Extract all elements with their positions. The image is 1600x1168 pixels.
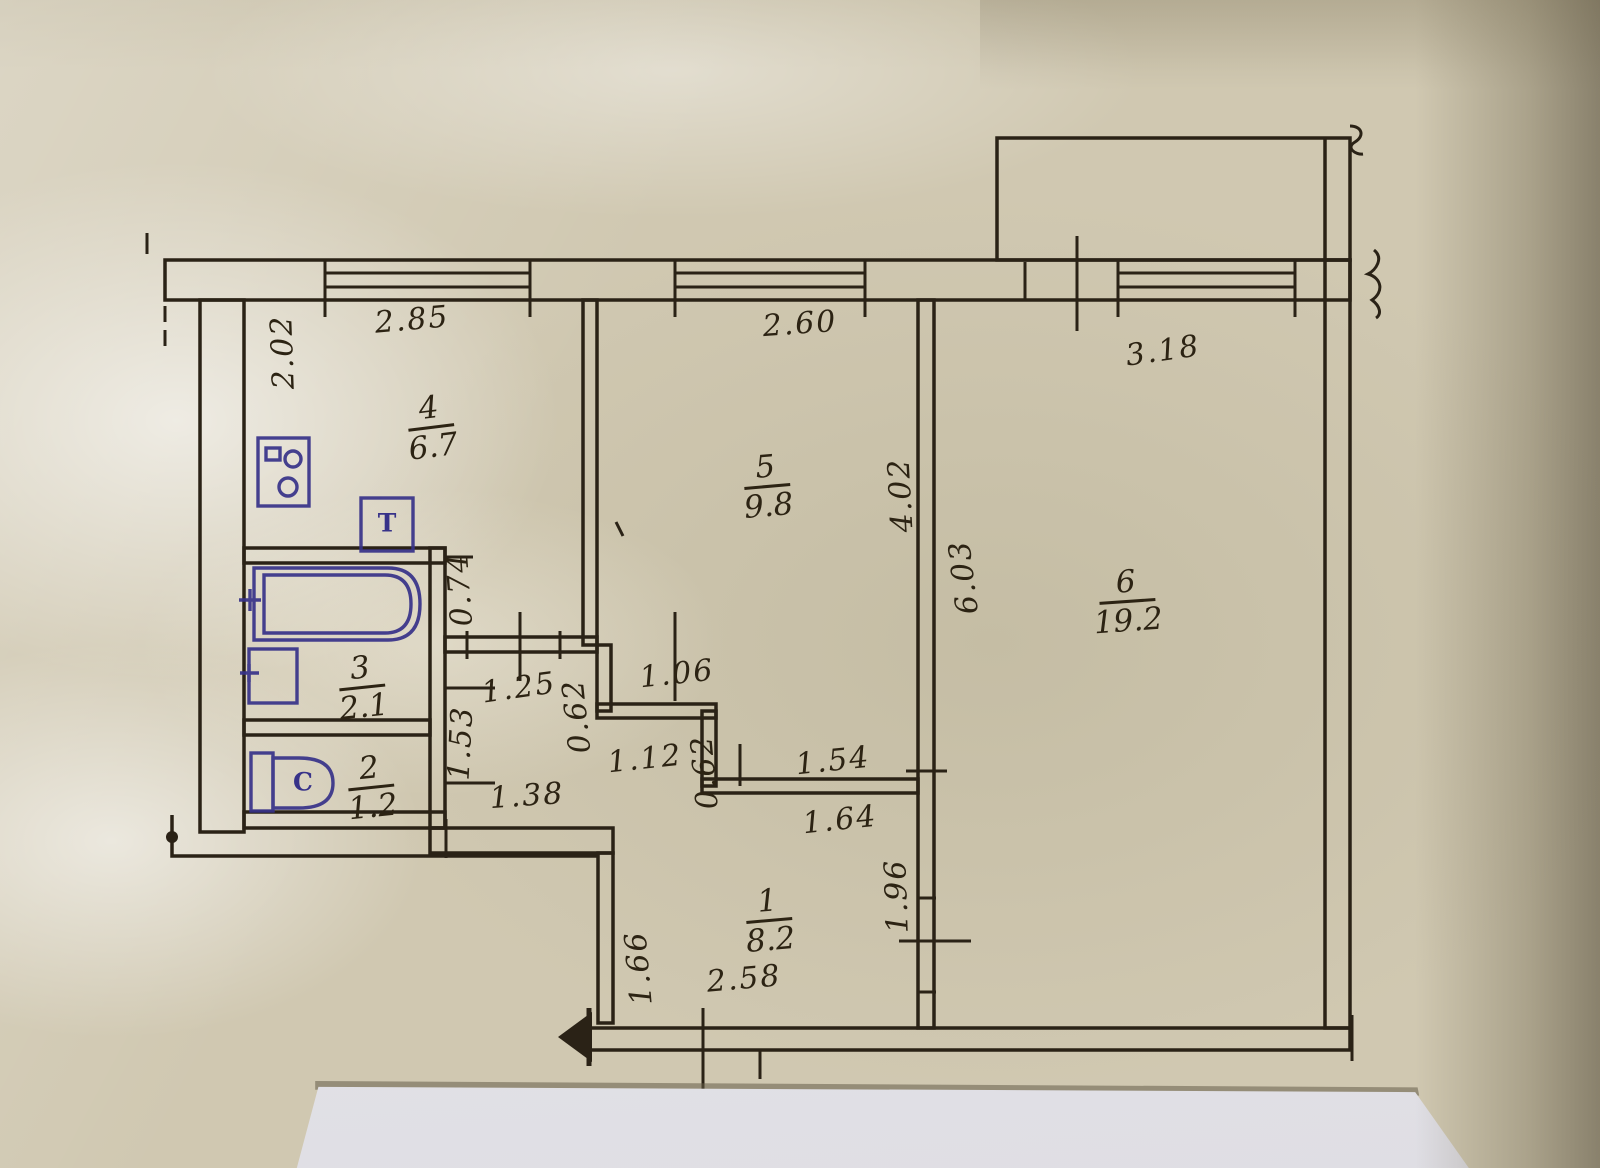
- stove-icon: [258, 438, 309, 506]
- hall-left-wall: [598, 853, 613, 1023]
- fixtures: [239, 438, 420, 811]
- dim-seg-258: 2.58: [705, 958, 783, 999]
- bathtub-icon: [239, 568, 420, 640]
- room-label-wc: 2 1.2: [343, 751, 399, 826]
- room-label-living: 6 19.2: [1090, 565, 1164, 640]
- dim-seg-074: 0.74: [440, 550, 480, 627]
- dim-kitchen-window: 2.85: [373, 299, 451, 340]
- hall-step-wall-d: [702, 779, 918, 793]
- dim-seg-166: 1.66: [618, 929, 659, 1007]
- toilet-icon: [251, 753, 333, 811]
- dim-seg-402: 4.02: [882, 457, 921, 534]
- bath-top-wall: [244, 548, 445, 563]
- room-area: 2.1: [338, 688, 390, 725]
- left-outer-wall: [200, 300, 244, 832]
- bedroom-window: [675, 260, 865, 300]
- bath-wc-wall: [244, 720, 430, 735]
- room-label-bedroom: 5 9.8: [739, 450, 794, 524]
- dim-seg-138: 1.38: [488, 776, 565, 816]
- dim-seg-153: 1.53: [442, 705, 481, 782]
- bottom-outer-wall: [587, 1028, 1350, 1050]
- living-room-wall: [918, 300, 934, 1028]
- room-number: 3: [334, 651, 386, 686]
- entry-door-mark: [166, 831, 178, 843]
- room-number: 1: [741, 884, 793, 918]
- room-area: 1.2: [347, 788, 399, 825]
- kitchen-window: [325, 260, 530, 300]
- room-label-bath: 3 2.1: [334, 651, 390, 726]
- room-area: 8.2: [745, 922, 797, 958]
- dim-seg-196: 1.96: [878, 858, 916, 934]
- corridor-bottom-wall: [430, 828, 613, 853]
- water-heater-letter: T: [378, 509, 397, 538]
- room-area: 19.2: [1093, 603, 1164, 640]
- break-squiggle-right: [1368, 250, 1380, 318]
- room-label-kitchen: 4 6.7: [402, 390, 459, 465]
- dim-bedroom-window: 2.60: [761, 304, 838, 344]
- room-number: 4: [402, 390, 455, 426]
- room-number: 5: [739, 450, 791, 484]
- hall-step-wall-b: [597, 704, 716, 718]
- living-window: [1118, 260, 1295, 300]
- wc-bottom-wall: [244, 812, 445, 828]
- balcony-outline: [997, 138, 1350, 260]
- top-outer-wall: [165, 260, 1350, 300]
- dim-seg-062-right: 0.62: [684, 733, 725, 811]
- sink-icon: [240, 649, 297, 703]
- room-label-hall: 1 8.2: [741, 884, 796, 958]
- room-number: 6: [1090, 565, 1161, 600]
- right-outer-wall: [1325, 260, 1350, 1028]
- room-area: 9.8: [743, 488, 795, 524]
- toilet-letter: C: [293, 768, 313, 797]
- kitchen-bedroom-wall: [583, 300, 597, 645]
- floor-plan-photo: 2.85 2.60 3.18 2.02 0.74 1.25 0.62 1.06 …: [0, 0, 1600, 1168]
- break-squiggle-top: [1350, 126, 1363, 154]
- hall-step-wall-a: [597, 645, 611, 711]
- room-number: 2: [343, 751, 395, 786]
- windows: [325, 260, 1295, 300]
- floor-plan-drawing: [0, 0, 1600, 1168]
- dim-kitchen-left: 2.02: [264, 314, 302, 390]
- room-area: 6.7: [407, 428, 460, 466]
